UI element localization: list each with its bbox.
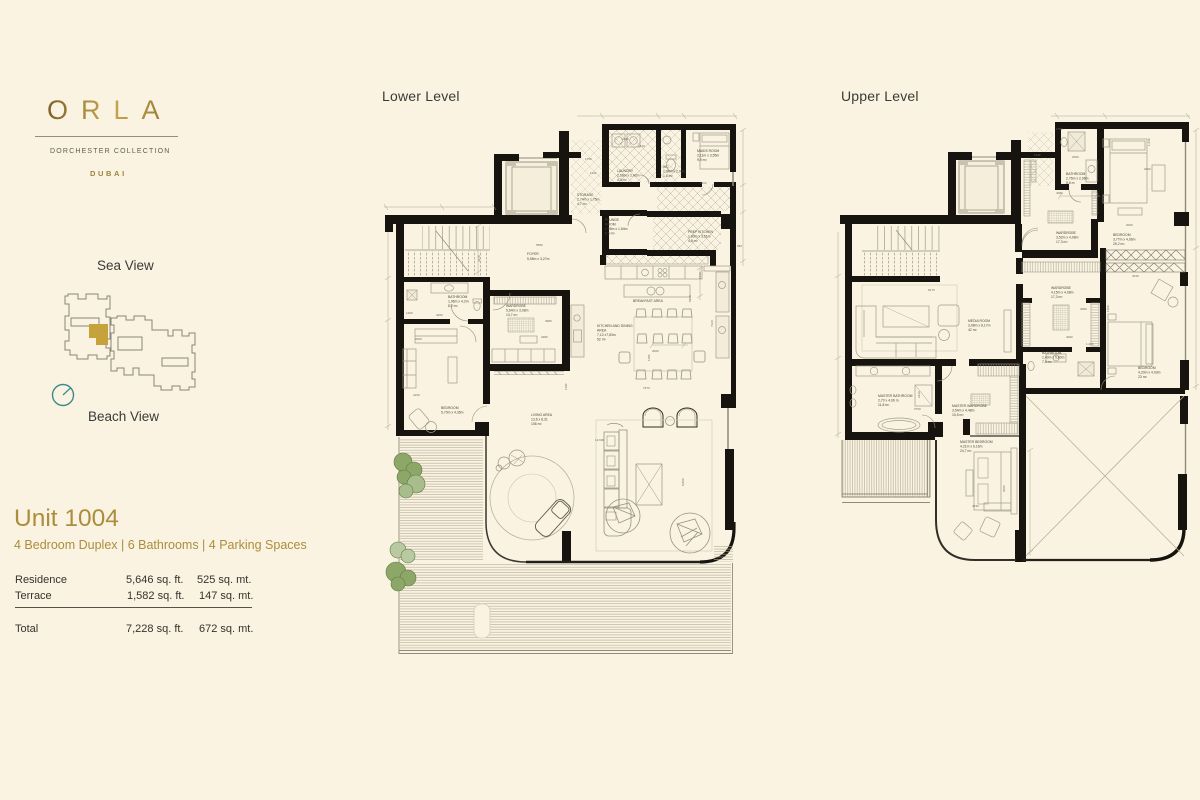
svg-text:1750: 1750 [585,157,592,161]
svg-text:1210: 1210 [638,144,645,148]
svg-text:4,8 m²: 4,8 m² [688,239,698,243]
svg-text:8170: 8170 [928,288,935,292]
svg-text:5580: 5580 [536,243,543,247]
svg-text:BEDROOM: BEDROOM [441,406,459,410]
svg-text:3,52m x 4,08m: 3,52m x 4,08m [1056,236,1079,240]
svg-text:WARDROBE: WARDROBE [1056,231,1077,235]
svg-text:11,8 m²: 11,8 m² [878,403,890,407]
svg-text:950: 950 [737,244,742,248]
svg-text:106 m²: 106 m² [531,422,542,426]
svg-text:WARDROBE: WARDROBE [506,304,527,308]
svg-text:4000: 4000 [1066,335,1073,339]
svg-text:1180: 1180 [647,354,651,361]
svg-text:PREP KITCHEN: PREP KITCHEN [688,230,714,234]
svg-text:4150: 4150 [413,393,420,397]
svg-text:13,7 m²: 13,7 m² [506,313,518,317]
svg-text:KITCHEN AND DINING: KITCHEN AND DINING [597,324,633,328]
svg-text:AREA: AREA [597,329,607,333]
svg-text:LAUNDRY: LAUNDRY [617,169,634,173]
svg-text:17,3 m²: 17,3 m² [1051,295,1063,299]
svg-text:BEDROOM: BEDROOM [1138,366,1156,370]
svg-text:MASTER BATHROOM: MASTER BATHROOM [878,394,913,398]
svg-text:5,6 m: 5,6 m [1066,181,1075,185]
svg-text:2,70 x 4,06 m: 2,70 x 4,06 m [878,399,899,403]
svg-text:2,11m x 3,55m: 2,11m x 3,55m [697,154,719,158]
svg-text:4,7 m²: 4,7 m² [577,202,587,206]
svg-text:PLUNGE: PLUNGE [605,218,620,222]
svg-text:LIVING AREA: LIVING AREA [531,413,553,417]
svg-text:2,05m x 1,64m: 2,05m x 1,64m [605,227,628,231]
svg-text:2110: 2110 [700,181,707,185]
svg-text:52 m²: 52 m² [597,338,607,342]
svg-text:7120: 7120 [710,320,714,327]
svg-text:3750: 3750 [914,407,921,411]
svg-text:3980: 3980 [545,319,552,323]
svg-text:7670: 7670 [643,386,650,390]
svg-text:STORAGE: STORAGE [577,193,594,197]
svg-text:2000: 2000 [415,337,422,341]
svg-text:BATHROOM: BATHROOM [1042,351,1062,355]
svg-text:42 m²: 42 m² [968,328,978,332]
svg-text:MASTER WARDROBE: MASTER WARDROBE [952,404,988,408]
svg-text:BATHROOM: BATHROOM [1066,172,1086,176]
svg-text:2000: 2000 [1144,167,1151,171]
svg-text:3380: 3380 [541,335,548,339]
svg-text:4230: 4230 [972,504,979,508]
svg-text:MASTER BEDROOM: MASTER BEDROOM [960,440,993,444]
svg-text:5900: 5900 [688,295,692,302]
svg-text:23 m²: 23 m² [1138,375,1148,379]
svg-text:2000: 2000 [1126,223,1133,227]
svg-text:1100: 1100 [564,383,568,390]
svg-text:BEDROOM: BEDROOM [1113,233,1131,237]
svg-text:17,3 m²: 17,3 m² [1056,240,1068,244]
svg-text:2,66m x 2,42m: 2,66m x 2,42m [617,174,640,178]
svg-text:9,9 m²: 9,9 m² [697,158,707,162]
svg-text:FOYER: FOYER [527,252,539,256]
svg-text:3,54m x 4,48m: 3,54m x 4,48m [952,409,975,413]
svg-text:1,96m x 4,2m: 1,96m x 4,2m [448,300,469,304]
svg-text:15,5 m²: 15,5 m² [952,413,964,417]
svg-text:1,40m x 5,80m: 1,40m x 5,80m [1042,356,1065,360]
svg-text:13,6 x 8,31: 13,6 x 8,31 [531,418,548,422]
svg-text:8,800: 8,800 [681,478,685,486]
svg-text:WC: WC [663,165,669,169]
svg-text:2430: 2430 [622,137,629,141]
svg-text:MEDIA ROOM: MEDIA ROOM [968,319,990,323]
svg-text:5,70m x 4,35m: 5,70m x 4,35m [441,411,464,415]
svg-text:BREAKFAST AREA: BREAKFAST AREA [633,299,664,303]
svg-text:2420: 2420 [917,391,921,398]
svg-text:4030: 4030 [1132,274,1139,278]
svg-text:1130: 1130 [590,171,597,175]
svg-text:BATHROOM: BATHROOM [448,295,468,299]
svg-text:2060: 2060 [1072,155,1079,159]
svg-text:1,34m x 2,90m: 1,34m x 2,90m [663,170,686,174]
svg-text:7,12 x7,83m: 7,12 x7,83m [597,333,616,337]
svg-text:4080: 4080 [1080,307,1087,311]
svg-text:1,200: 1,200 [1086,342,1094,346]
svg-text:2,76m x 2,06m: 2,76m x 2,06m [1066,177,1089,181]
svg-text:1,80m x 3,51m: 1,80m x 3,51m [688,235,711,239]
svg-text:2,74m x 1,75m: 2,74m x 1,75m [577,198,600,202]
svg-text:WARDROBE: WARDROBE [1051,286,1072,290]
svg-text:5,58m x 3,27m: 5,58m x 3,27m [527,257,550,261]
svg-text:1130: 1130 [1034,153,1041,157]
svg-text:1200: 1200 [406,311,413,315]
svg-text:7,0 m²: 7,0 m² [1042,360,1052,364]
svg-text:MAIDS ROOM: MAIDS ROOM [697,149,719,153]
svg-text:1200: 1200 [1106,305,1110,312]
svg-text:4,20m x 4,03m: 4,20m x 4,03m [1138,371,1161,375]
svg-text:25,2 m²: 25,2 m² [1113,242,1125,246]
svg-text:1,8 m²: 1,8 m² [663,174,673,178]
svg-text:5,64m x 3,08m: 5,64m x 3,08m [506,309,529,313]
svg-text:4,4 m²: 4,4 m² [617,178,627,182]
svg-text:ROOM: ROOM [605,223,616,227]
svg-text:1760: 1760 [1056,127,1063,131]
svg-text:4200: 4200 [436,313,443,317]
svg-text:24,7 m²: 24,7 m² [960,449,972,453]
svg-text:4080: 4080 [1056,191,1063,195]
svg-text:3000: 3000 [652,349,659,353]
svg-text:12,600: 12,600 [595,438,605,442]
svg-text:1,240: 1,240 [1147,138,1151,146]
svg-text:2000: 2000 [1002,485,1006,492]
svg-text:4,21m x 6,16m: 4,21m x 6,16m [960,445,983,449]
svg-text:3,77m x 4,06m: 3,77m x 4,06m [1113,238,1136,242]
svg-text:3,98m x 8,17m: 3,98m x 8,17m [968,324,991,328]
svg-text:3270: 3270 [477,255,481,262]
svg-text:8,2 m²: 8,2 m² [448,304,458,308]
svg-text:1060: 1060 [698,272,702,279]
svg-text:5,5 m²: 5,5 m² [605,232,615,236]
svg-text:4,15m x 4,08m: 4,15m x 4,08m [1051,291,1074,295]
